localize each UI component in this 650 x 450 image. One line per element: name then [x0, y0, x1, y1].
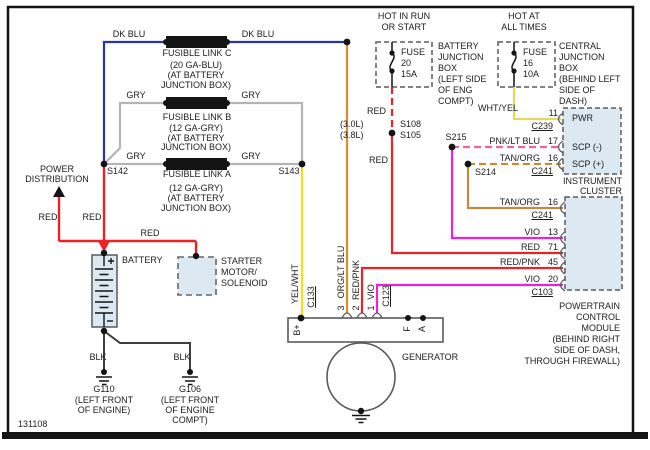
- label-gen-pin-3: 3: [336, 305, 346, 310]
- label-pin-16-cluster: 16: [548, 153, 558, 163]
- label-vio-vert: VIO: [366, 284, 376, 300]
- label-tan-org-pcm: TAN/ORG: [500, 197, 540, 207]
- label-vio-20: VIO: [524, 274, 540, 284]
- label-g106-loc1: (LEFT FRONT: [161, 395, 219, 405]
- label-splice-s105: S105: [400, 130, 421, 140]
- label-fuse20-3: 15A: [401, 69, 417, 79]
- label-red-pnk-vert: RED/PNK: [351, 260, 361, 300]
- label-link-c-loc2: JUNCTION BOX): [161, 80, 231, 90]
- label-battery-label: BATTERY: [122, 255, 163, 265]
- label-cjb-6: DASH): [559, 96, 587, 106]
- label-cluster-pin-scp-plus: SCP (+): [572, 159, 604, 169]
- label-link-c-loc1: (AT BATTERY: [168, 70, 225, 80]
- label-hot-at-2: ALL TIMES: [501, 22, 547, 32]
- label-fuse20-2: 20: [401, 58, 411, 68]
- label-cjb-4: (BEHIND LEFT: [559, 74, 621, 84]
- label-bjb-4: (LEFT SIDE: [438, 74, 486, 84]
- label-starter-3: SOLENOID: [221, 278, 268, 288]
- label-power-dist-1: POWER: [40, 164, 74, 174]
- label-gen-term-a: A: [417, 326, 427, 332]
- label-red-71: RED: [521, 242, 540, 252]
- label-gry-b-right: GRY: [241, 90, 260, 100]
- label-link-c-gauge: (20 GA-BLU): [170, 60, 222, 70]
- label-bjb-1: BATTERY: [438, 41, 479, 51]
- label-link-a-loc1: (AT BATTERY: [168, 193, 225, 203]
- label-g110-loc2: OF ENGINE): [78, 405, 131, 415]
- label-cjb-1: CENTRAL: [559, 41, 601, 51]
- label-gen-term-f: F: [402, 326, 412, 332]
- label-cjb-2: JUNCTION: [559, 52, 605, 62]
- label-g106-loc2: OF ENGINE: [165, 405, 215, 415]
- label-fusible-link-b: FUSIBLE LINK B: [163, 112, 232, 122]
- label-red-fuse: RED: [367, 106, 386, 116]
- label-pin-16-pcm: 16: [548, 197, 558, 207]
- label-pin-71: 71: [548, 242, 558, 252]
- label-pin-45: 45: [548, 257, 558, 267]
- label-engine-38: (3.8L): [340, 130, 364, 140]
- label-gen-term-bplus: B+: [292, 324, 302, 335]
- label-pcm-name-5: SIDE OF DASH,: [554, 345, 620, 355]
- label-g106-loc3: COMPT): [172, 415, 208, 425]
- label-cluster-pin-scp-minus: SCP (-): [572, 142, 602, 152]
- label-starter-1: STARTER: [221, 256, 262, 266]
- label-pcm-name-3: MODULE: [581, 323, 620, 333]
- label-cluster-name-1: INSTRUMENT: [563, 176, 622, 186]
- label-wht-yel: WHT/YEL: [478, 103, 518, 113]
- wiring-diagram-page: DK BLUDK BLUFUSIBLE LINK C(20 GA-BLU)(AT…: [0, 0, 650, 450]
- label-splice-s142: S142: [107, 166, 128, 176]
- label-cjb-3: BOX: [559, 63, 578, 73]
- label-pcm-name-4: (BEHIND RIGHT: [553, 334, 621, 344]
- label-link-b-gauge: (12 GA-GRY): [169, 123, 223, 133]
- label-yel-wht-vert: YEL/WHT: [290, 264, 300, 304]
- label-conn-c241-pcm: C241: [531, 210, 553, 220]
- label-org-lt-blu-vert: ORG/LT BLU: [336, 246, 346, 299]
- label-red-starter: RED: [140, 228, 159, 238]
- diagram-number: 131108: [18, 419, 47, 429]
- label-conn-c133: C133: [306, 286, 316, 308]
- label-fuse20-1: FUSE: [401, 47, 425, 57]
- label-red-mid: RED: [369, 155, 388, 165]
- label-pin-11: 11: [549, 108, 558, 118]
- label-blk-right: BLK: [173, 352, 190, 362]
- label-dk-blu-left: DK BLU: [113, 29, 146, 39]
- label-dk-blu-right: DK BLU: [242, 29, 275, 39]
- label-engine-30: (3.0L): [340, 119, 364, 129]
- label-red-battery: RED: [82, 212, 101, 222]
- label-g106: G106: [179, 384, 201, 394]
- label-fusible-link-c: FUSIBLE LINK C: [162, 48, 231, 58]
- label-generator-label: GENERATOR: [402, 352, 458, 362]
- label-gen-pin-2: 2: [351, 305, 361, 310]
- label-g110-loc1: (LEFT FRONT: [75, 395, 133, 405]
- diagram-labels-layer: DK BLUDK BLUFUSIBLE LINK C(20 GA-BLU)(AT…: [0, 0, 650, 450]
- label-vio-13: VIO: [524, 227, 540, 237]
- label-bjb-3: BOX: [438, 63, 457, 73]
- label-blk-left: BLK: [89, 352, 106, 362]
- label-gry-b-left: GRY: [126, 90, 145, 100]
- label-cluster-name-2: CLUSTER: [580, 186, 622, 196]
- label-pnk-lt-blu: PNK/LT BLU: [489, 136, 540, 146]
- label-pcm-name-6: THROUGH FIREWALL): [524, 356, 620, 366]
- label-splice-s215: S215: [445, 132, 466, 142]
- label-gen-pin-1: 1: [366, 305, 376, 310]
- label-hot-in-run-1: HOT IN RUN: [378, 11, 430, 21]
- label-link-b-loc2: JUNCTION BOX): [161, 142, 231, 152]
- label-fuse16-1: FUSE: [523, 47, 547, 57]
- label-bjb-5: OF ENG: [438, 85, 473, 95]
- label-splice-s214: S214: [475, 167, 496, 177]
- label-link-a-gauge: (12 GA-GRY): [169, 183, 223, 193]
- label-g110: G110: [93, 384, 114, 394]
- label-bjb-6: COMPT): [438, 96, 474, 106]
- label-hot-in-run-2: OR START: [382, 22, 427, 32]
- label-splice-s108: S108: [400, 119, 421, 129]
- label-fuse16-3: 10A: [523, 69, 539, 79]
- label-pin-13: 13: [548, 227, 558, 237]
- label-bjb-2: JUNCTION: [438, 52, 484, 62]
- label-fusible-link-a: FUSIBLE LINK A: [163, 169, 231, 179]
- label-cjb-5: SIDE OF: [559, 85, 595, 95]
- label-splice-s143: S143: [278, 166, 299, 176]
- label-conn-c103: C103: [531, 287, 553, 297]
- label-cluster-pin-pwr: PWR: [572, 113, 593, 123]
- label-conn-c241-cluster: C241: [531, 166, 553, 176]
- label-conn-c123: C123: [381, 285, 391, 307]
- label-starter-2: MOTOR/: [221, 267, 257, 277]
- label-hot-at-1: HOT AT: [508, 11, 540, 21]
- label-pin-17: 17: [548, 136, 558, 146]
- label-link-a-loc2: JUNCTION BOX): [161, 203, 231, 213]
- label-red-power-dist: RED: [38, 212, 57, 222]
- label-pcm-name-2: CONTROL: [576, 312, 620, 322]
- label-power-dist-2: DISTRIBUTION: [25, 174, 89, 184]
- label-gry-a-left: GRY: [126, 151, 145, 161]
- label-pcm-name-1: POWERTRAIN: [559, 301, 620, 311]
- label-conn-c239: C239: [531, 121, 553, 131]
- label-fuse16-2: 16: [523, 58, 533, 68]
- label-red-pnk-45: RED/PNK: [500, 257, 540, 267]
- label-pin-20: 20: [548, 274, 558, 284]
- label-gry-a-right: GRY: [241, 151, 260, 161]
- label-tan-org-scp: TAN/ORG: [500, 153, 540, 163]
